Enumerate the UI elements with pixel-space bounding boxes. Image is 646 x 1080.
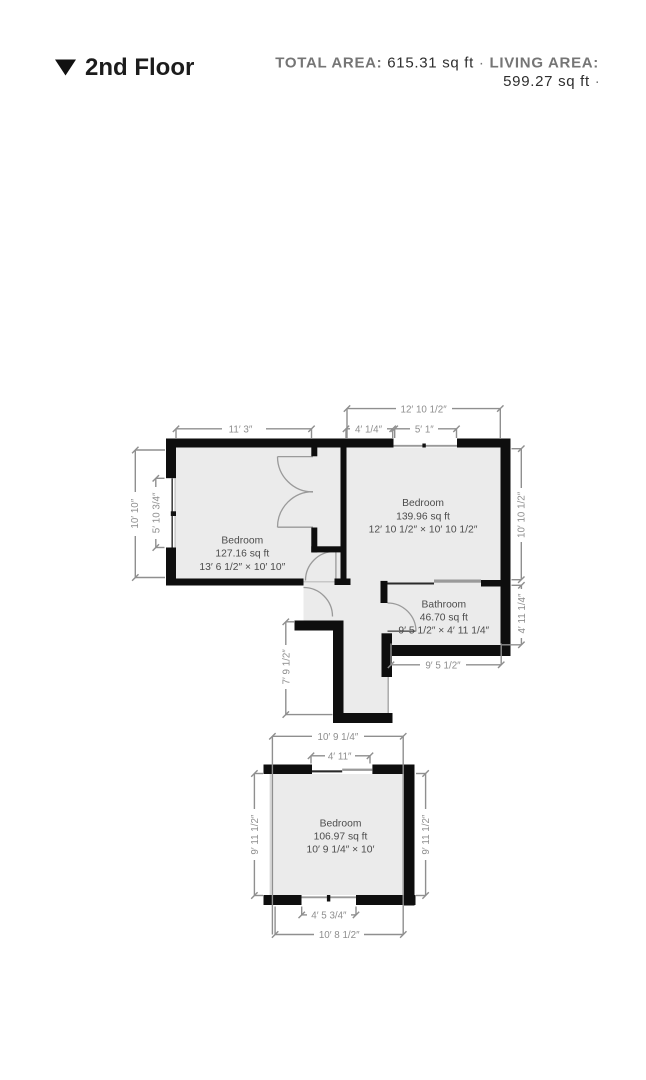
svg-text:10′ 9 1/4″ × 10′: 10′ 9 1/4″ × 10′: [307, 845, 375, 856]
svg-text:10′ 8 1/2″: 10′ 8 1/2″: [319, 930, 360, 941]
svg-text:13′ 6 1/2″ × 10′ 10″: 13′ 6 1/2″ × 10′ 10″: [199, 562, 285, 573]
svg-text:Bedroom: Bedroom: [320, 819, 362, 830]
svg-text:599.27 sq ft ·: 599.27 sq ft ·: [503, 73, 600, 90]
svg-text:Bathroom: Bathroom: [421, 599, 466, 610]
svg-text:TOTAL AREA: 615.31 sq ft · LIV: TOTAL AREA: 615.31 sq ft · LIVING AREA:: [275, 54, 599, 71]
svg-text:5′ 10 3/4″: 5′ 10 3/4″: [151, 492, 162, 533]
svg-text:127.16 sq ft: 127.16 sq ft: [215, 549, 269, 560]
svg-text:4′ 5 3/4″: 4′ 5 3/4″: [311, 911, 347, 922]
svg-text:Bedroom: Bedroom: [402, 498, 444, 509]
svg-text:9′ 5 1/2″ × 4′ 11 1/4″: 9′ 5 1/2″ × 4′ 11 1/4″: [398, 626, 489, 637]
svg-text:2nd Floor: 2nd Floor: [85, 54, 194, 81]
svg-text:7′ 9 1/2″: 7′ 9 1/2″: [281, 649, 292, 685]
svg-text:4′ 11 1/4″: 4′ 11 1/4″: [517, 593, 528, 634]
svg-text:4′ 11″: 4′ 11″: [328, 751, 352, 762]
svg-text:9′ 11 1/2″: 9′ 11 1/2″: [421, 814, 432, 855]
svg-text:5′ 1″: 5′ 1″: [415, 424, 434, 435]
svg-text:106.97 sq ft: 106.97 sq ft: [314, 832, 368, 843]
svg-text:11′ 3″: 11′ 3″: [229, 425, 253, 436]
svg-text:Bedroom: Bedroom: [221, 535, 263, 546]
svg-text:4′ 1/4″: 4′ 1/4″: [355, 424, 383, 435]
svg-text:9′ 5 1/2″: 9′ 5 1/2″: [425, 660, 461, 671]
svg-text:12′ 10 1/2″ × 10′ 10 1/2″: 12′ 10 1/2″ × 10′ 10 1/2″: [369, 524, 478, 535]
svg-text:10′ 10 1/2″: 10′ 10 1/2″: [516, 491, 527, 538]
svg-text:12′ 10 1/2″: 12′ 10 1/2″: [401, 404, 448, 415]
svg-text:46.70 sq ft: 46.70 sq ft: [420, 612, 468, 623]
svg-text:10′ 9 1/4″: 10′ 9 1/4″: [318, 732, 359, 743]
svg-text:139.96 sq ft: 139.96 sq ft: [396, 511, 450, 522]
svg-text:10′ 10″: 10′ 10″: [130, 498, 141, 528]
svg-text:9′ 11 1/2″: 9′ 11 1/2″: [250, 814, 261, 855]
